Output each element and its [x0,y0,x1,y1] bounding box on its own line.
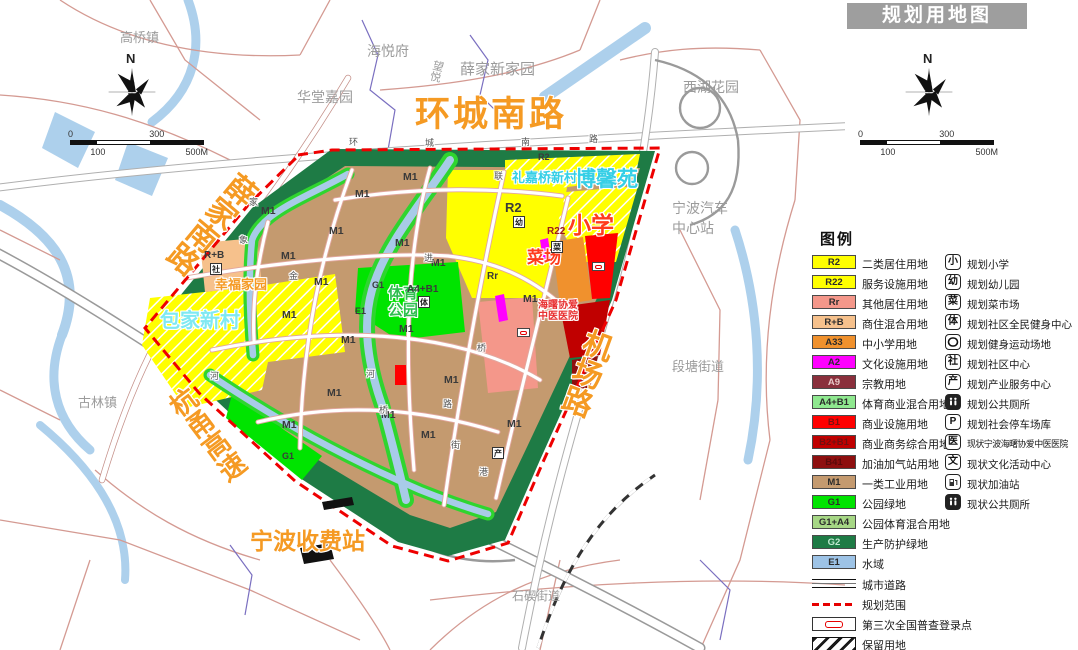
legend-label: 中小学用地 [862,336,917,352]
zone-code-m1: M1 [399,324,414,336]
toilet-icon [945,394,961,410]
legend-label: 城市道路 [862,577,906,593]
zone-code-m1: M1 [314,277,329,289]
road-char: 家 [249,198,258,208]
marker-label: 规划公共厕所 [967,397,1030,412]
legend-code: R2 [828,257,840,268]
road-char: 象 [239,236,248,246]
road-char: 桥 [379,406,388,416]
road-char: 路 [589,135,598,145]
marker-label: 规划健身运动场地 [967,337,1051,352]
legend-label: 商住混合用地 [862,316,928,332]
marker-label: 规划幼儿园 [967,277,1020,292]
marker-label: 规划社区中心 [967,357,1030,372]
scalebar-0: 0 [858,129,863,139]
marker-label: 现状公共厕所 [967,497,1030,512]
marker-label: 现状加油站 [967,477,1020,492]
legend-code: A9 [828,377,840,388]
marker-label: 规划社会停车场库 [967,417,1051,432]
legend-swatch: E1 [812,555,856,569]
zone-code-r2: R2 [505,201,522,215]
planning-boundary-symbol [812,603,856,606]
place-duantang-subdistrict: 段塘街道 [672,360,724,374]
zone-code-m1: M1 [421,430,436,442]
legend-label: 商业商务综合用地 [862,436,950,452]
road-char: 街 [451,441,460,451]
legend-code: B41 [825,457,842,468]
legend-code: A2 [828,357,840,368]
legend-compass-rose-icon [903,66,955,118]
road-char: 港 [479,468,488,478]
reserved-land-symbol [812,637,856,650]
culture-center-icon: 文 [945,454,961,470]
zone-code-m1: M1 [444,375,459,387]
scalebar-bar [70,140,204,145]
legend-header: 图例 [820,228,854,249]
zone-code-m1: M1 [281,251,296,263]
zone-code-rr: Rr [487,271,498,282]
zone-code-m1: M1 [261,206,276,218]
fitness-center-icon: 体 [945,314,961,330]
map-industry-service-icon: 产 [492,447,504,459]
scalebar-100: 100 [90,147,105,157]
legend-swatch: A9 [812,375,856,389]
place-gaoqiao-town: 高桥镇 [120,31,159,45]
legend-label: 规划范围 [862,597,906,613]
legend-label: 其他居住用地 [862,296,928,312]
city-road-symbol [812,579,856,588]
legend-code: B1 [828,417,840,428]
legend-swatch: A4+B1 [812,395,856,409]
place-xuejia-xinjiayuan: 薛家新家园 [460,62,535,79]
site-xingfu-jiayuan: 幸福家园 [215,278,267,292]
site-boxinyuan: 博馨苑 [575,168,638,191]
scalebar-0: 0 [68,129,73,139]
legend-code: A4+B1 [819,397,849,408]
site-lijiaqiao-xincun: 礼嘉桥新村 [512,171,577,185]
road-char: 河 [366,370,375,380]
site-hospital: 海曙协爱中医医院 [538,300,582,322]
scalebar-300: 300 [939,129,954,139]
legend-label: 服务设施用地 [862,276,928,292]
marker-label: 规划小学 [967,257,1009,272]
map-community-icon: 社 [210,263,222,275]
zone-code-a4b1: A4+B1 [407,284,438,295]
zone-code-m1: M1 [507,419,522,431]
legend-label: 一类工业用地 [862,476,928,492]
place-gulin-town: 古林镇 [78,396,117,410]
map-fitness-icon: 体 [418,296,430,308]
zone-code-g1: G1 [372,281,384,291]
market-icon: 菜 [945,294,961,310]
place-shiqi-subdistrict: 石碶街道 [512,590,560,603]
site-baojia-xincun: 包家新村 [160,310,240,332]
road-label-huanchengnanlu: 环城南路 [415,96,567,135]
marker-label: 规划菜市场 [967,297,1020,312]
sports-ground-icon [945,334,961,350]
place-haiyuefu: 海悦府 [367,44,409,59]
legend-code: B2+B1 [819,437,849,448]
zone-code-r22: R22 [547,226,565,237]
legend-label: 文化设施用地 [862,356,928,372]
toilet-icon [945,494,961,510]
legend-swatch: Rr [812,295,856,309]
planning-map-page: N 0 300 100 500M 环城南路 薛家南路 机场路 杭甬高速 宁波收费… [0,0,1078,650]
legend-swatch: G1+A4 [812,515,856,529]
zone-code-m1: M1 [282,310,297,322]
zone-code-m1: M1 [341,335,356,347]
legend-swatch: R22 [812,275,856,289]
census-point-icon [592,262,605,271]
census-point-symbol [812,617,856,631]
community-center-icon: 社 [945,354,961,370]
legend-swatch: A33 [812,335,856,349]
zone-code-m1: M1 [395,238,410,250]
legend-scalebar: 0 300 100 500M [858,128,998,158]
zone-code-m1: M1 [355,189,370,201]
legend-code: G1+A4 [819,517,849,528]
legend-swatch: B41 [812,455,856,469]
legend-swatch: R2 [812,255,856,269]
page-title: 规划用地图 [847,3,1027,29]
marker-label: 规划产业服务中心 [967,377,1051,392]
scalebar-500: 500M [975,147,998,157]
legend-code: A33 [825,337,842,348]
compass-rose-icon [106,66,158,118]
road-char: 联 [494,172,503,182]
legend-swatch: G2 [812,535,856,549]
parking-icon: P [945,414,961,430]
scalebar-100: 100 [880,147,895,157]
scalebar-bar [860,140,994,145]
zone-code-m1: M1 [327,388,342,400]
zone-code-e1: E1 [355,307,366,317]
legend-label: 加油加气站用地 [862,456,939,472]
label-ningbo-toll-station: 宁波收费站 [250,529,365,554]
road-char: 金 [289,272,298,282]
legend-north-label: N [923,52,932,66]
legend-label: 生产防护绿地 [862,536,928,552]
legend-swatch: M1 [812,475,856,489]
legend-label: 公园体育混合用地 [862,516,950,532]
legend-code: R+B [824,317,843,328]
zone-code-m1: M1 [329,226,344,238]
scalebar-500: 500M [185,147,208,157]
industry-service-icon: 产 [945,374,961,390]
zone-code-m1: M1 [282,420,297,432]
legend-swatch: G1 [812,495,856,509]
marker-label: 现状文化活动中心 [967,457,1051,472]
legend-label: 保留用地 [862,637,906,650]
road-char: 城 [425,139,434,149]
zone-code-m1: M1 [523,294,538,306]
zone-code-m1: M1 [431,258,446,270]
map-scalebar: 0 300 100 500M [68,128,208,158]
legend-code: G2 [828,537,841,548]
school-icon: 小 [945,254,961,270]
legend-label: 宗教用地 [862,376,906,392]
zone-code-r2-small: R2 [538,153,550,163]
legend-swatch: B2+B1 [812,435,856,449]
marker-label: 规划社区全民健身中心 [967,317,1072,332]
zone-code-m1: M1 [403,172,418,184]
legend-code: M1 [827,477,840,488]
road-char: 桥 [477,344,486,354]
legend-label: 商业设施用地 [862,416,928,432]
road-char: 环 [349,138,358,148]
marker-label: 现状宁波海曙协爱中医医院 [967,437,1068,450]
zone-code-rb: R+B [204,250,224,261]
site-primary-school: 小学 [568,213,614,238]
hospital-icon: 医 [945,434,961,450]
legend-code: E1 [828,557,840,568]
scalebar-300: 300 [149,129,164,139]
road-char: 进 [424,254,433,264]
census-point-icon [517,328,530,337]
legend-swatch: R+B [812,315,856,329]
road-char: 南 [521,138,530,148]
map-kindergarten-icon: 幼 [513,216,525,228]
place-xihu-huayuan: 西湖花园 [683,80,739,95]
legend-swatch: A2 [812,355,856,369]
legend-label: 第三次全国普查登录点 [862,617,972,633]
legend-label: 水域 [862,556,884,572]
place-huatang-jiayuan: 华堂嘉园 [297,90,353,105]
road-char: 路 [443,400,452,410]
map-north-label: N [126,52,135,66]
legend-swatch: B1 [812,415,856,429]
legend-code: Rr [829,297,840,308]
gas-station-icon [945,474,961,490]
legend-code: R22 [825,277,842,288]
legend-label: 体育商业混合用地 [862,396,950,412]
road-char: 河 [210,372,219,382]
kindergarten-icon: 幼 [945,274,961,290]
legend-code: G1 [828,497,841,508]
place-ningbo-auto-center-station: 宁波汽车中心站 [672,198,734,239]
zone-code-g1: G1 [282,452,294,462]
legend-label: 公园绿地 [862,496,906,512]
map-market-icon: 菜 [551,241,563,253]
legend-label: 二类居住用地 [862,256,928,272]
